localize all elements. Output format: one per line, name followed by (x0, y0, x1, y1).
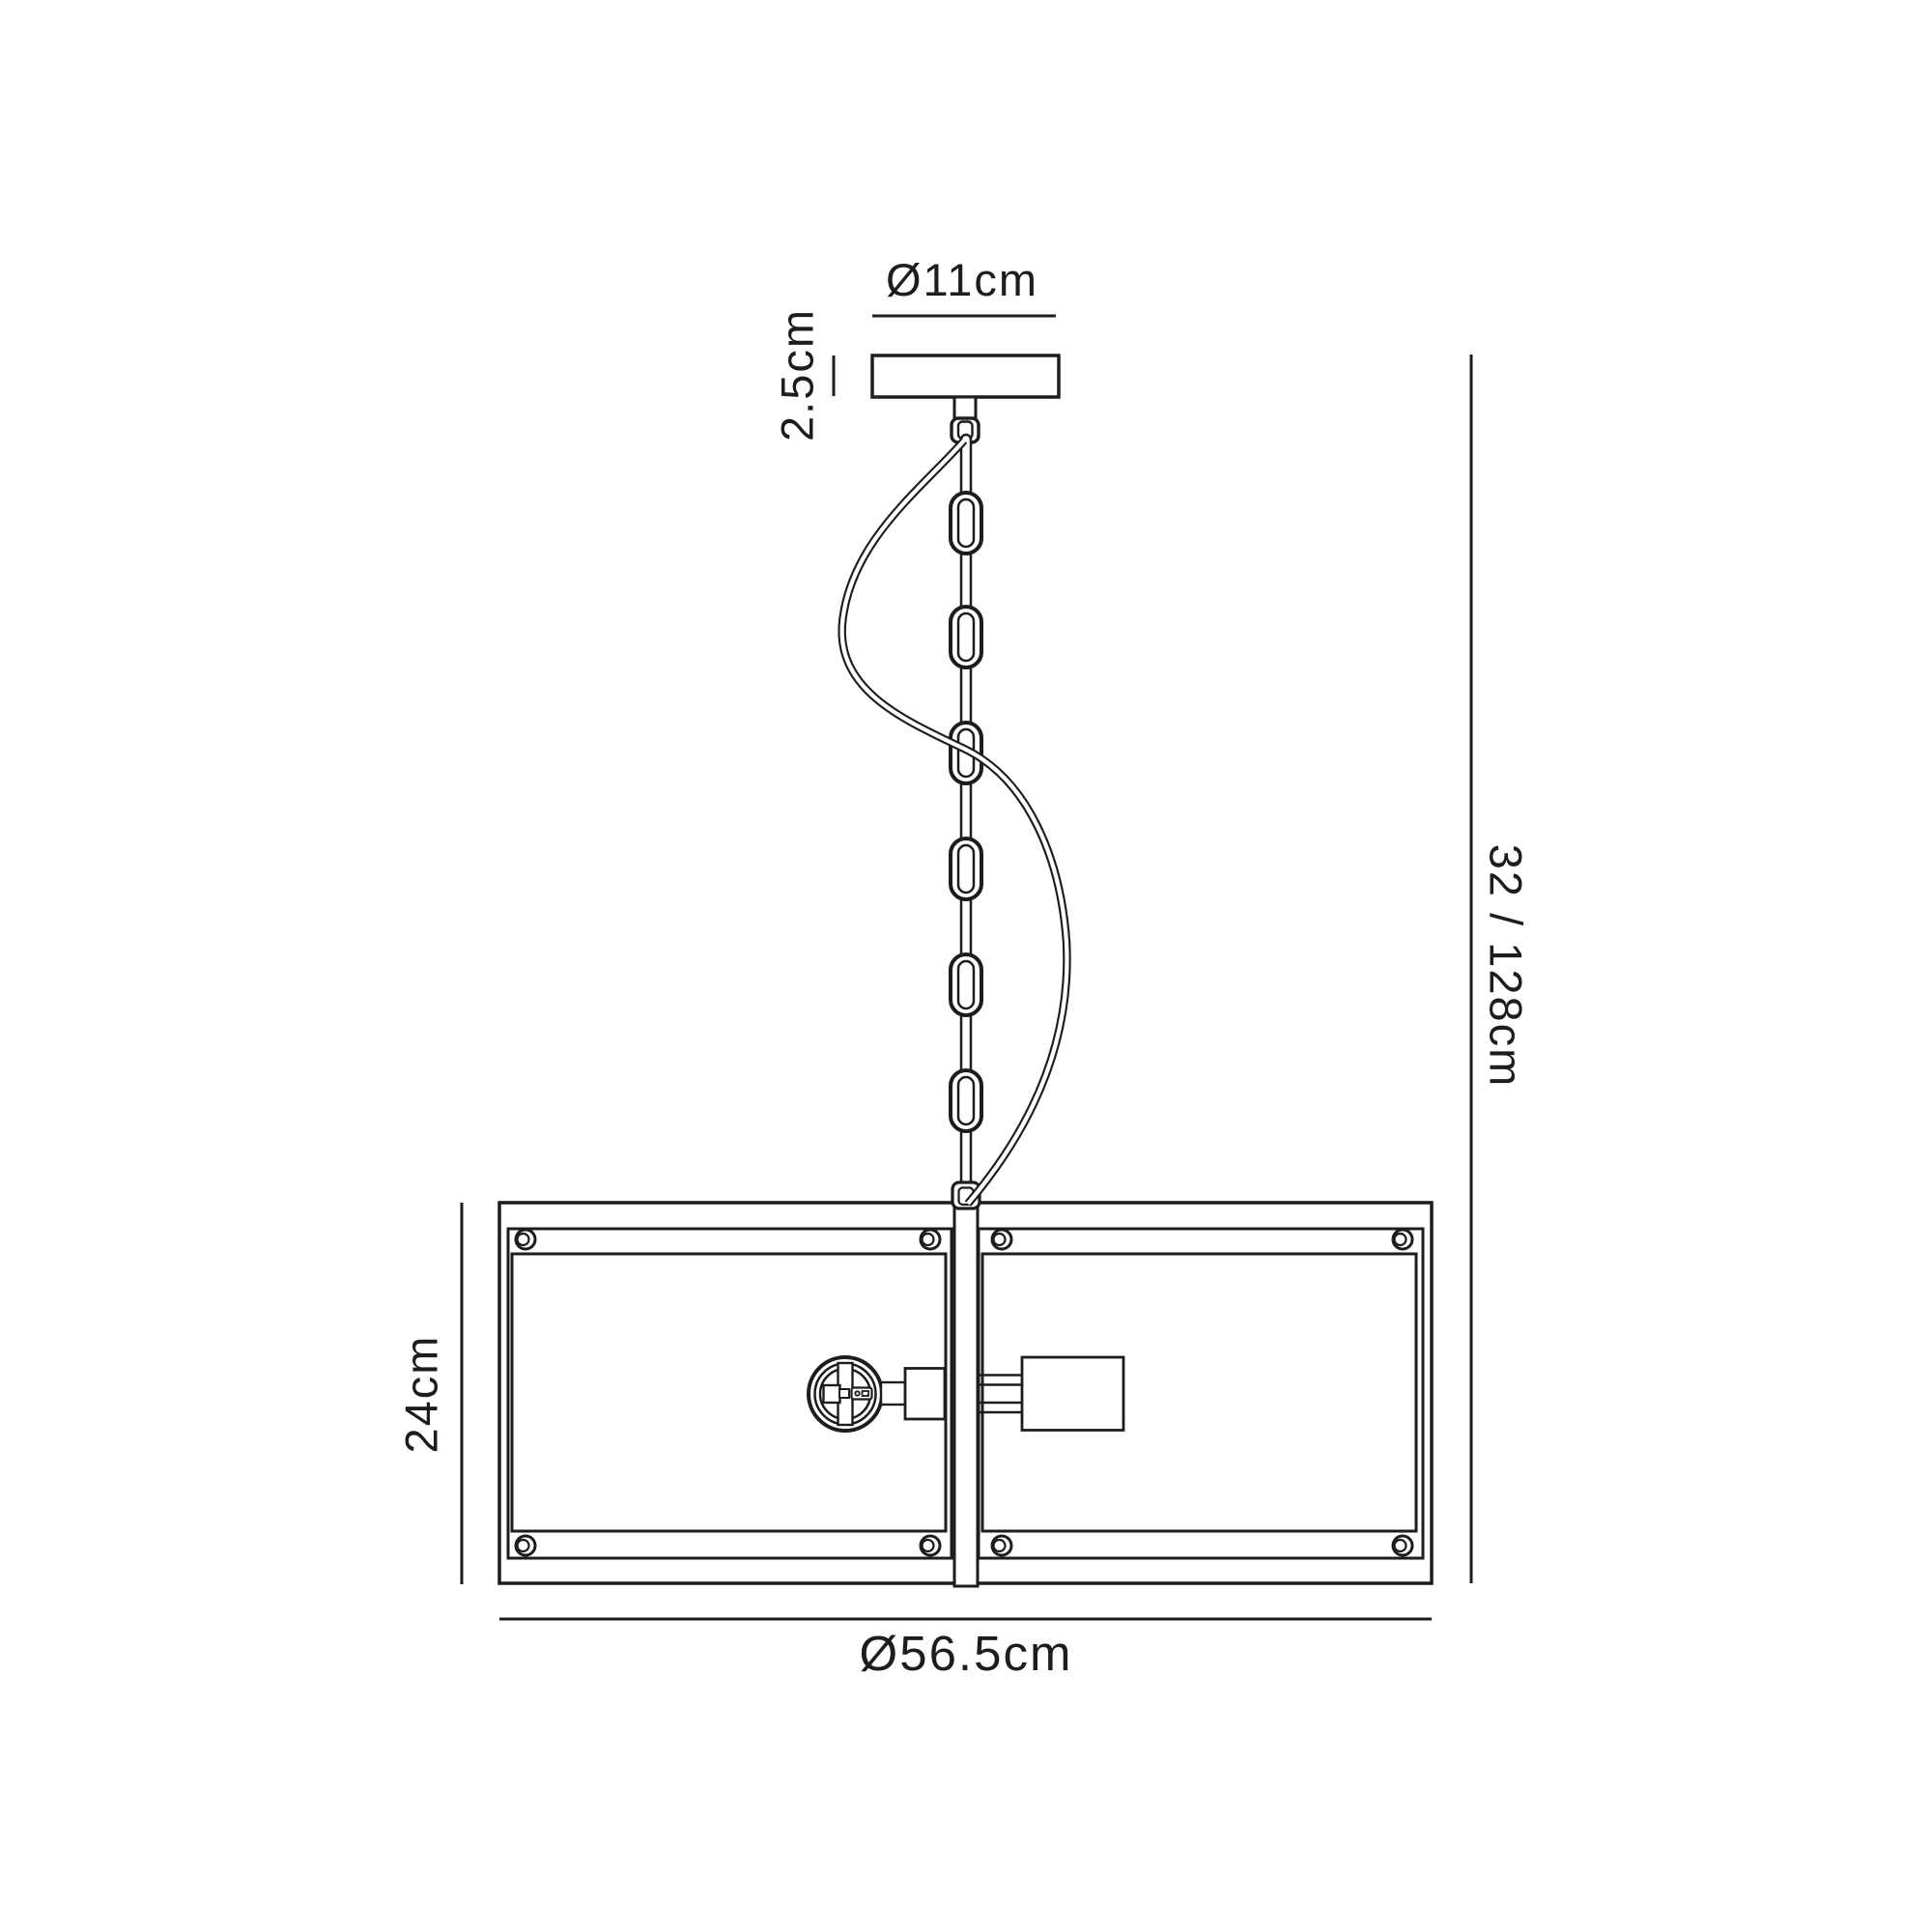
rivet (1393, 1536, 1412, 1555)
pendant-light-diagram: Ø11cm 2.5cm 32 / 128cm 24cm Ø56.5cm (0, 0, 1932, 1932)
chain-link (951, 838, 981, 899)
shade-group (499, 1182, 1432, 1586)
rivet (516, 1536, 535, 1555)
canopy-group (872, 355, 1059, 442)
rivet (1393, 1230, 1412, 1249)
diagram-canvas: Ø11cm 2.5cm 32 / 128cm 24cm Ø56.5cm (0, 0, 1932, 1932)
shade-central-strut (954, 1203, 978, 1586)
chain-group (951, 435, 981, 1191)
rivet (992, 1536, 1011, 1555)
rivet (921, 1230, 940, 1249)
shade-height-label: 24cm (396, 1335, 447, 1454)
canopy-diameter-label: Ø11cm (886, 254, 1038, 305)
rivet (921, 1536, 940, 1555)
chain-connector (961, 547, 971, 614)
overall-drop-label: 32 / 128cm (1481, 844, 1532, 1089)
chain-link (951, 607, 981, 668)
lampholder-left-tab (824, 1385, 840, 1403)
chain-link (951, 1070, 981, 1131)
shade-diameter-label: Ø56.5cm (860, 1626, 1073, 1681)
chain-connector (961, 779, 971, 846)
bulb-socket-body (1022, 1357, 1123, 1431)
chain-connector (961, 895, 971, 962)
lampholder-center-slot (839, 1389, 849, 1398)
canopy-stem (954, 397, 976, 419)
chain-connector (961, 663, 971, 730)
canopy-plate (872, 355, 1059, 397)
chain-link (951, 493, 981, 554)
rivet (516, 1230, 535, 1249)
lampholder-neck (881, 1382, 905, 1405)
canopy-height-label: 2.5cm (772, 308, 823, 441)
chain-link (951, 954, 981, 1015)
lampholder-body (905, 1369, 945, 1420)
chain-connector (961, 1010, 971, 1078)
rivet (992, 1230, 1011, 1249)
